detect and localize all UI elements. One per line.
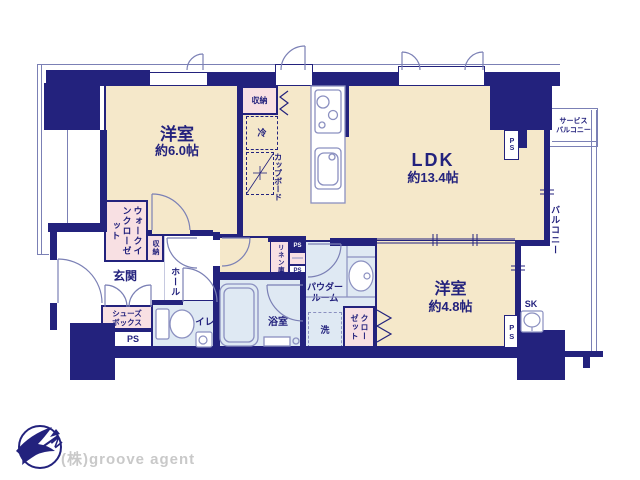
- bedroom6-size: 約6.0帖: [155, 144, 199, 159]
- outline-left-inner: [41, 64, 42, 255]
- bedroom48-closet-box: クローゼット: [343, 306, 375, 348]
- ldk-name: LDK: [412, 150, 455, 171]
- hall-storage-label: 収納: [151, 240, 159, 256]
- washer-label: 洗: [309, 313, 341, 347]
- watermark-text: (株)groove agent: [61, 448, 195, 469]
- cupboard-label: カップボード: [273, 153, 282, 201]
- wall-bottomleft-block: [70, 323, 115, 380]
- wall-topright-block: [490, 72, 552, 130]
- bedroom48-size: 約4.8帖: [428, 300, 472, 315]
- outline-left-outer: [37, 64, 38, 255]
- compass-circle: [19, 426, 61, 468]
- casement-window-arc-left: [187, 54, 203, 70]
- room-bath: [215, 278, 302, 348]
- toilet-label: トイレ: [182, 317, 218, 329]
- hall-label: ホール: [170, 267, 180, 297]
- sk-sink-icon: [521, 311, 543, 332]
- wall-bedroom6-bottom-right: [190, 230, 213, 236]
- wall-entrance-top: [48, 223, 107, 232]
- wall-bedroom6-bottom-left: [146, 230, 152, 236]
- wall-topleft-block: [44, 83, 100, 130]
- ldk-label: LDK 約13.4帖: [378, 146, 488, 190]
- walk-in-closet-box: ウォークインクローゼット: [104, 200, 148, 262]
- cupboard-label-wrap: カップボード: [271, 149, 285, 205]
- sk-label: SK: [517, 299, 545, 310]
- window-bedroom6: [150, 72, 207, 86]
- walk-in-closet-label: ウォークインクローゼット: [110, 202, 143, 260]
- wall-kitchen: [343, 86, 349, 137]
- wall-left: [100, 130, 107, 232]
- compass-needle: [24, 436, 58, 460]
- window-ldk-doors: [398, 66, 485, 86]
- bedroom6-label: 洋室 約6.0帖: [117, 120, 237, 164]
- wall-bottom: [113, 346, 517, 358]
- service-balcony-label: サービス バルコニー: [550, 111, 597, 141]
- balcony-label-wrap: バルコニー: [547, 200, 563, 260]
- outline-left-bottom: [37, 254, 49, 255]
- cupboard-box: [246, 152, 274, 195]
- floor-plan: ウォークインクローゼット 収納 収納 リネン庫 PS PS クローゼット シュー…: [0, 0, 640, 480]
- bath-label: 浴室: [261, 316, 295, 329]
- ps-ldk-box: PS: [504, 130, 519, 160]
- compass-icon: N: [16, 426, 65, 468]
- ps-duct-mid: [289, 252, 306, 265]
- balcony-rail-inner: [596, 110, 597, 356]
- wall-bottom-bar-tick: [583, 357, 590, 368]
- window-kitchen: [275, 64, 313, 86]
- fridge-box: 冷: [246, 116, 278, 150]
- doorway-hall-ldk: [213, 240, 220, 266]
- kitchen-storage-label: 収納: [243, 88, 276, 113]
- compass-bird-icon: [16, 427, 55, 465]
- entrance-label: 玄関: [103, 269, 147, 284]
- compass-arrowhead: [50, 429, 60, 437]
- hall-storage-box: 収納: [146, 234, 164, 262]
- ps-bedroom48-label: PS: [507, 323, 516, 341]
- ps-entrance-label: PS: [115, 332, 151, 346]
- wall-topright-step: [552, 72, 560, 86]
- wall-entrance-jamb-lower: [50, 303, 57, 330]
- ps-ldk-label: PS: [507, 138, 515, 152]
- wall-bottomright-block: [517, 330, 565, 380]
- bedroom6-name: 洋室: [160, 125, 194, 145]
- fridge-label: 冷: [247, 117, 277, 149]
- common-area-line: [67, 130, 68, 225]
- kitchen-storage-box: 収納: [241, 86, 278, 115]
- balcony-rail-outer: [591, 110, 592, 356]
- ldk-corridor: [218, 236, 274, 274]
- powder-room-label: パウダー ルーム: [304, 279, 346, 307]
- ldk-size: 約13.4帖: [407, 171, 458, 186]
- wall-linen-top: [268, 236, 306, 242]
- wall-bedroom6-right: [237, 86, 243, 236]
- wall-bath-top: [213, 272, 306, 280]
- bedroom48-name: 洋室: [434, 281, 466, 299]
- balcony-label: バルコニー: [550, 205, 560, 255]
- wall-entrance-jamb-upper: [50, 232, 57, 260]
- wall-powder-top: [330, 238, 377, 246]
- bedroom48-label: 洋室 約4.8帖: [393, 276, 508, 320]
- linen-label: リネン庫: [276, 244, 283, 274]
- bedroom48-closet-label: クローゼット: [349, 310, 369, 344]
- wall-ps-chunk: [519, 130, 527, 148]
- washer-box: 洗: [308, 312, 342, 348]
- hall-label-wrap: ホール: [167, 260, 183, 304]
- toilet-door-arc: [183, 268, 217, 302]
